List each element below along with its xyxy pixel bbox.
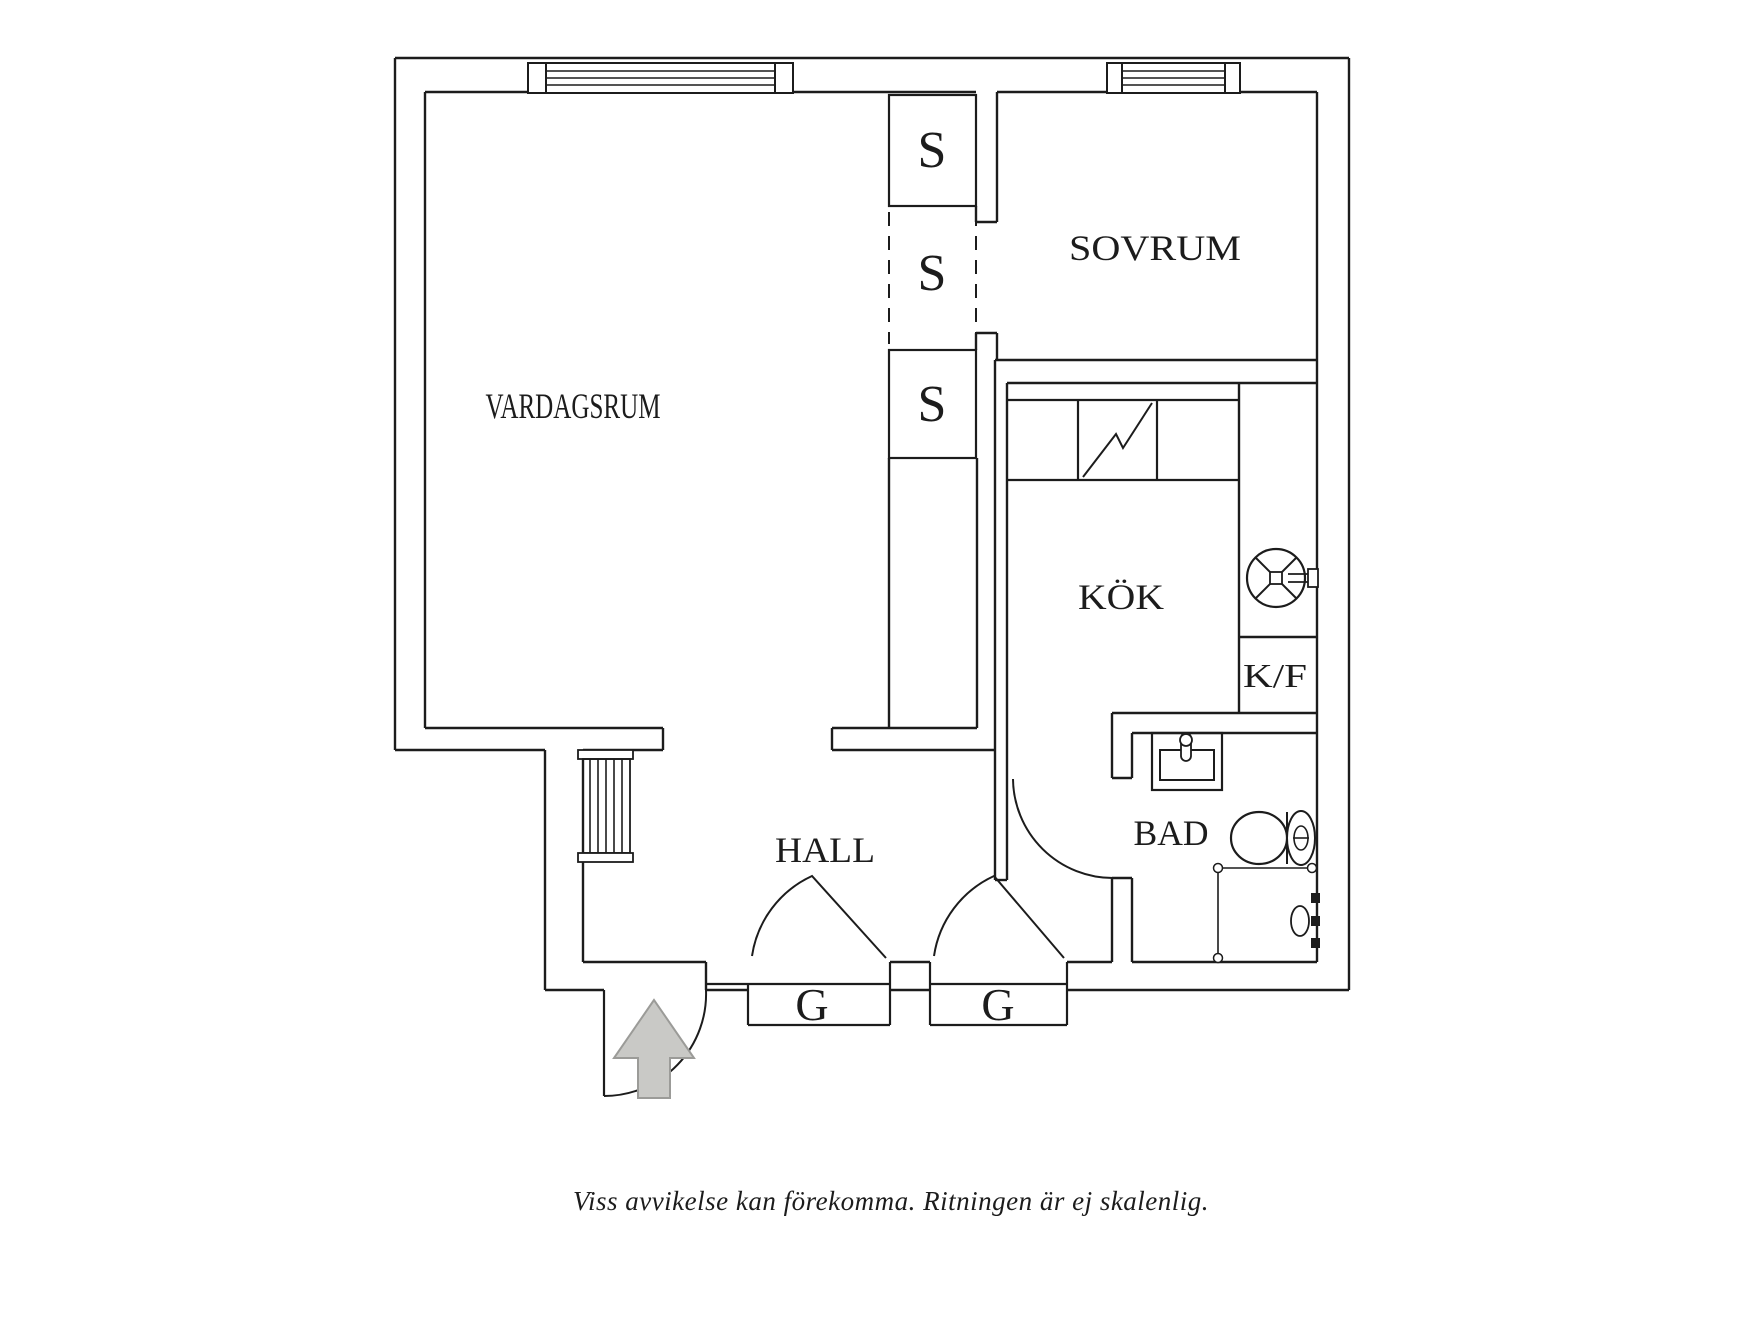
room-label-kok: KÖK [1078,577,1164,617]
g-wardrobe-door-arc [752,876,886,958]
shower-rail-end [1214,864,1223,873]
shower-bracket [1311,916,1320,926]
plan-disclaimer-caption: Viss avvikelse kan förekomma. Ritningen … [573,1186,1209,1217]
shower-bracket [1311,938,1320,948]
floor-plan-shapes: VARDAGSRUMSOVRUMKÖKHALLBADK/FSSSGG [395,58,1349,1098]
stove-fan-icon [1270,572,1282,584]
g-wardrobe-door-arc [934,876,1064,958]
radiator [578,853,633,862]
wardrobe-label-g1: G [795,979,828,1030]
toilet-bowl [1231,812,1287,864]
closet-label-s3: S [918,376,947,433]
bathroom-door-arc [1013,779,1113,878]
room-label-bad: BAD [1134,813,1209,853]
floor-plan: VARDAGSRUMSOVRUMKÖKHALLBADK/FSSSGG [0,0,1754,1334]
wardrobe-label-g2: G [981,979,1014,1030]
room-label-sovrum: SOVRUM [1069,228,1241,268]
room-label-hall: HALL [775,830,875,870]
closet-label-s1: S [918,122,947,179]
label-kf: K/F [1243,658,1307,695]
shower-rail-end [1214,954,1223,963]
room-label-vardagsrum: VARDAGSRUM [486,386,661,426]
sink-symbol [1083,403,1152,477]
closet-label-s2: S [918,245,947,302]
shower-head-icon [1291,906,1309,936]
shower-rail-end [1308,864,1317,873]
entry-arrow-icon [614,1000,694,1098]
shower-bracket [1311,893,1320,903]
bath-faucet-icon [1180,734,1192,746]
stove-fan-handle [1308,569,1318,587]
radiator [578,750,633,759]
